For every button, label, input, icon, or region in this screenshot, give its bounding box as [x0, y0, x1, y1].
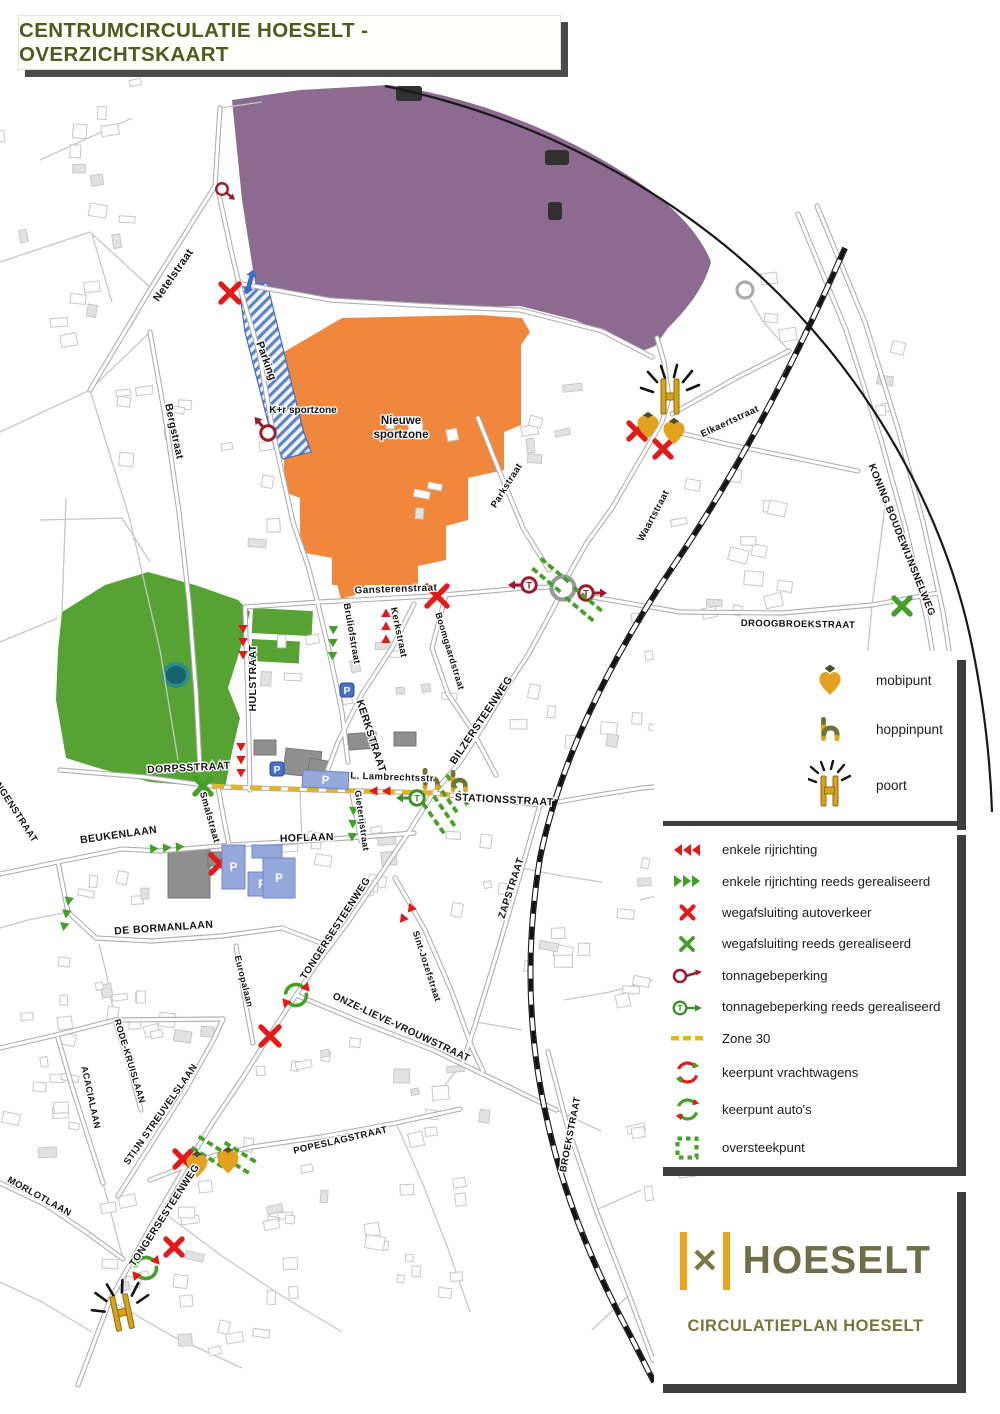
legend-row: wegafsluiting reeds gerealiseerd — [654, 928, 957, 959]
logo-bar-icon — [680, 1232, 687, 1290]
svg-text:P: P — [321, 774, 330, 786]
street-label: Boomgaardstraat — [433, 611, 466, 691]
green-x-icon — [664, 935, 710, 953]
keerpunt-cars-icon — [664, 1096, 710, 1123]
road-closure-x — [655, 441, 671, 457]
legend-row: oversteekpunt — [654, 1128, 957, 1168]
road-closure-x — [221, 284, 239, 302]
road-closure-x — [166, 1239, 182, 1255]
legend-row: Zone 30 — [654, 1022, 957, 1053]
legend-label: keerpunt vrachtwagens — [722, 1065, 858, 1080]
logo-panel: ✕ HOESELT CIRCULATIEPLAN HOESELT — [654, 1183, 957, 1384]
zone-label: Nieuwe — [381, 415, 421, 427]
one-way-arrows — [236, 743, 246, 778]
logo-subtitle: CIRCULATIEPLAN HOESELT — [688, 1317, 924, 1336]
page-title: CENTRUMCIRCULATIE HOESELT - OVERZICHTSKA… — [19, 19, 560, 67]
street-label: HOFLAAN — [280, 831, 335, 845]
street-label: DE BORMANLAAN — [114, 919, 214, 938]
legend-points-panel: mobipunt hoppinpunt — [654, 651, 957, 821]
parking-area: P — [263, 858, 295, 898]
svg-text:P: P — [343, 685, 350, 697]
street-label: Waartstraat — [636, 488, 672, 543]
zone-label: K+r sportzone — [269, 405, 337, 416]
legend-row: tonnagebeperking — [654, 960, 957, 991]
zone-label: sportzone — [374, 429, 429, 441]
logo-name: HOESELT — [743, 1239, 931, 1283]
parking-area: P — [302, 770, 349, 789]
svg-text:T: T — [677, 1003, 683, 1013]
street-label: L. Lambrechtsstr — [350, 771, 434, 785]
legend-label: wegafsluiting reeds gerealiseerd — [722, 936, 911, 951]
street-label: TONGERSESTEENWEG — [299, 875, 373, 981]
legend-row: enkele rijrichting — [654, 834, 957, 865]
hoppinpunt-icon — [804, 713, 856, 745]
oversteekpunt-icon — [664, 1135, 710, 1161]
legend-label: wegafsluiting autoverkeer — [722, 905, 872, 920]
legend-row-poort: poort — [654, 754, 957, 816]
street-label: STATIONSSTRAAT — [454, 791, 554, 808]
parking-area: P — [222, 845, 245, 889]
street-label: HULSTRAAT — [247, 644, 259, 711]
parking-icon: P — [340, 683, 354, 697]
street-label: RODE-KRUISLAAN — [112, 1018, 147, 1105]
svg-text:T: T — [526, 580, 532, 591]
red-x-icon — [664, 903, 710, 922]
street-label: Europalaan — [233, 954, 256, 1008]
legend-label: oversteekpunt — [722, 1140, 805, 1155]
legend-row: enkele rijrichting reeds gerealiseerd — [654, 865, 957, 896]
tonnage-icon — [664, 965, 710, 985]
svg-text:P: P — [230, 862, 238, 874]
zone30-icon — [664, 1032, 710, 1044]
title-box: CENTRUMCIRCULATIE HOESELT - OVERZICHTSKA… — [18, 15, 561, 70]
legend-label: enkele rijrichting reeds gerealiseerd — [722, 874, 930, 889]
legend-row: wegafsluiting autoverkeer — [654, 897, 957, 928]
poort-icon — [804, 760, 856, 810]
legend-label: hoppinpunt — [876, 722, 943, 737]
tonnage-done-icon: T — [664, 997, 710, 1017]
street-label: Bruliofstraat — [341, 602, 363, 665]
street-label: NGENSTRAAT — [0, 781, 40, 845]
map-page: TTTPPPPPPNetelstraatBergstraatGansterens… — [0, 0, 1000, 1414]
street-label: ONZE-LIEVE-VROUWSTRAAT — [331, 991, 472, 1064]
hoppinpunt-marker — [451, 770, 468, 792]
hoeselt-logo: ✕ HOESELT — [680, 1232, 931, 1290]
svg-text:P: P — [275, 873, 283, 885]
parking-icon: P — [270, 762, 284, 776]
legend-row: T tonnagebeperking reeds gerealiseerd — [654, 991, 957, 1022]
legend-label: keerpunt auto's — [722, 1102, 812, 1117]
red-arrows-icon — [664, 842, 710, 858]
legend-row: keerpunt auto's — [654, 1091, 957, 1128]
parking-area — [252, 845, 282, 858]
keerpunt-trucks-icon — [664, 1059, 710, 1086]
legend-label: tonnagebeperking reeds gerealiseerd — [722, 999, 940, 1014]
street-label: DROOGBROEKSTRAAT — [741, 618, 856, 631]
legend-label: Zone 30 — [722, 1031, 770, 1046]
street-label: BEUKENLAAN — [79, 824, 157, 847]
legend-label: mobipunt — [876, 673, 932, 688]
green-arrows-icon — [664, 873, 710, 889]
legend-row-mobipunt: mobipunt — [654, 656, 957, 704]
street-label: MORLOTLAAN — [5, 1175, 73, 1219]
logo-bar-icon — [723, 1232, 730, 1290]
logo-x-icon: ✕ — [691, 1244, 719, 1277]
legend-label: enkele rijrichting — [722, 842, 817, 857]
legend-label: poort — [876, 778, 907, 793]
mobipunt-icon — [804, 663, 856, 697]
legend-label: tonnagebeperking — [722, 968, 828, 983]
legend-symbols-panel: enkele rijrichting enkele rijrichting re… — [654, 826, 957, 1167]
legend-row: keerpunt vrachtwagens — [654, 1054, 957, 1091]
mobipunt-marker — [664, 418, 685, 445]
svg-text:P: P — [273, 764, 280, 776]
road-closure-x — [261, 1027, 279, 1045]
legend-row-hoppinpunt: hoppinpunt — [654, 704, 957, 754]
svg-text:T: T — [414, 793, 420, 804]
